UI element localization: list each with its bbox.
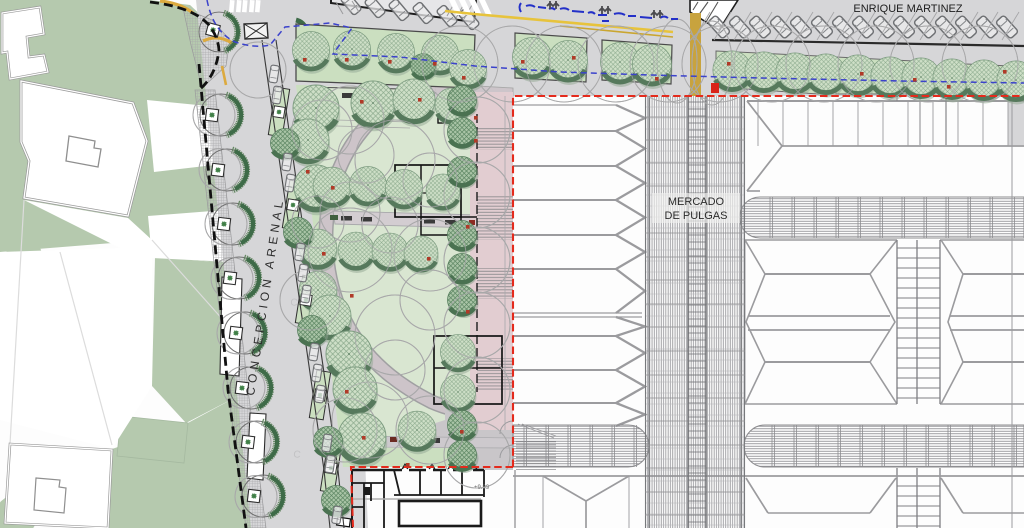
svg-text:C: C [290, 297, 299, 309]
svg-text:MERCADO: MERCADO [668, 196, 725, 208]
svg-text:ENRIQUE MARTINEZ: ENRIQUE MARTINEZ [853, 3, 962, 15]
svg-text:C: C [293, 449, 302, 461]
svg-text:DE PULGAS: DE PULGAS [665, 210, 728, 222]
